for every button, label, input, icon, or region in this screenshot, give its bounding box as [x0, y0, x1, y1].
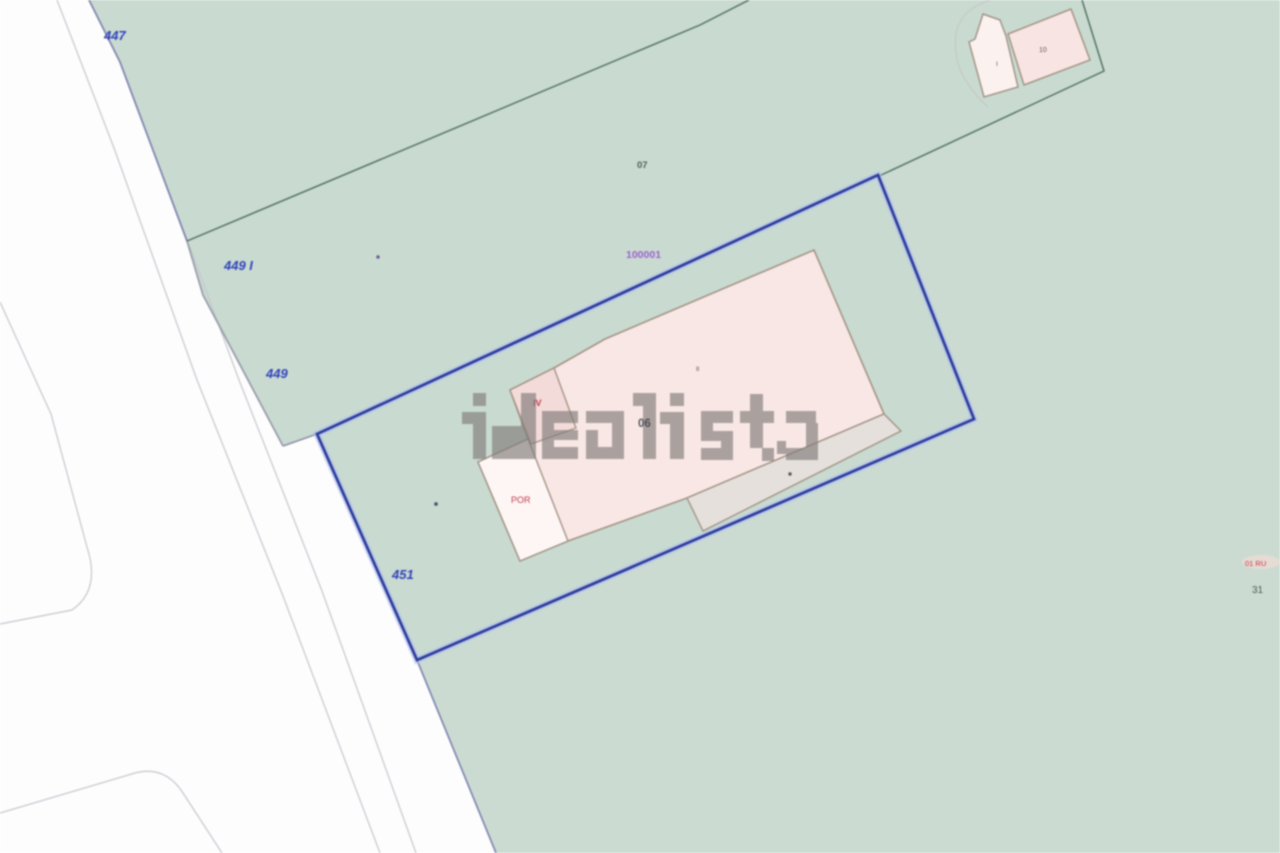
svg-text:07: 07 — [637, 160, 648, 171]
svg-text:447: 447 — [103, 28, 126, 43]
svg-text:06: 06 — [638, 418, 651, 430]
svg-text:I: I — [996, 61, 998, 68]
svg-text:31: 31 — [1252, 585, 1264, 596]
svg-text:10: 10 — [1039, 47, 1047, 54]
svg-text:II: II — [696, 367, 700, 373]
svg-text:01 RU: 01 RU — [1245, 559, 1266, 568]
svg-text:449 I: 449 I — [223, 258, 253, 273]
svg-text:449: 449 — [265, 366, 288, 381]
svg-text:451: 451 — [391, 567, 414, 582]
svg-text:POR: POR — [511, 495, 531, 505]
svg-text:100001: 100001 — [626, 249, 661, 261]
